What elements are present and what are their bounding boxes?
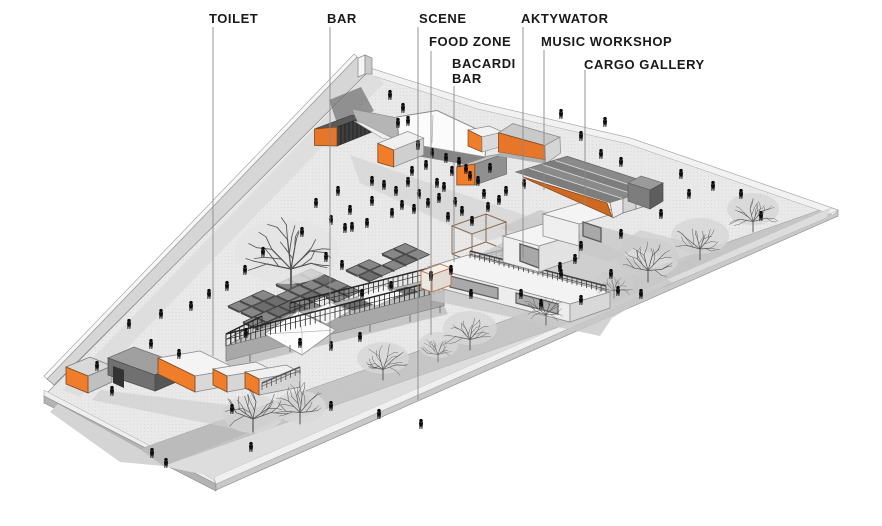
svg-text:SCENE: SCENE xyxy=(419,11,467,26)
svg-text:BAR: BAR xyxy=(452,71,482,86)
svg-text:TOILET: TOILET xyxy=(209,11,258,26)
svg-text:FOOD ZONE: FOOD ZONE xyxy=(429,34,511,49)
svg-text:BAR: BAR xyxy=(327,11,357,26)
svg-text:MUSIC WORKSHOP: MUSIC WORKSHOP xyxy=(541,34,672,49)
svg-text:CARGO GALLERY: CARGO GALLERY xyxy=(584,57,705,72)
svg-text:BACARDI: BACARDI xyxy=(452,56,516,71)
svg-text:AKTYWATOR: AKTYWATOR xyxy=(521,11,609,26)
